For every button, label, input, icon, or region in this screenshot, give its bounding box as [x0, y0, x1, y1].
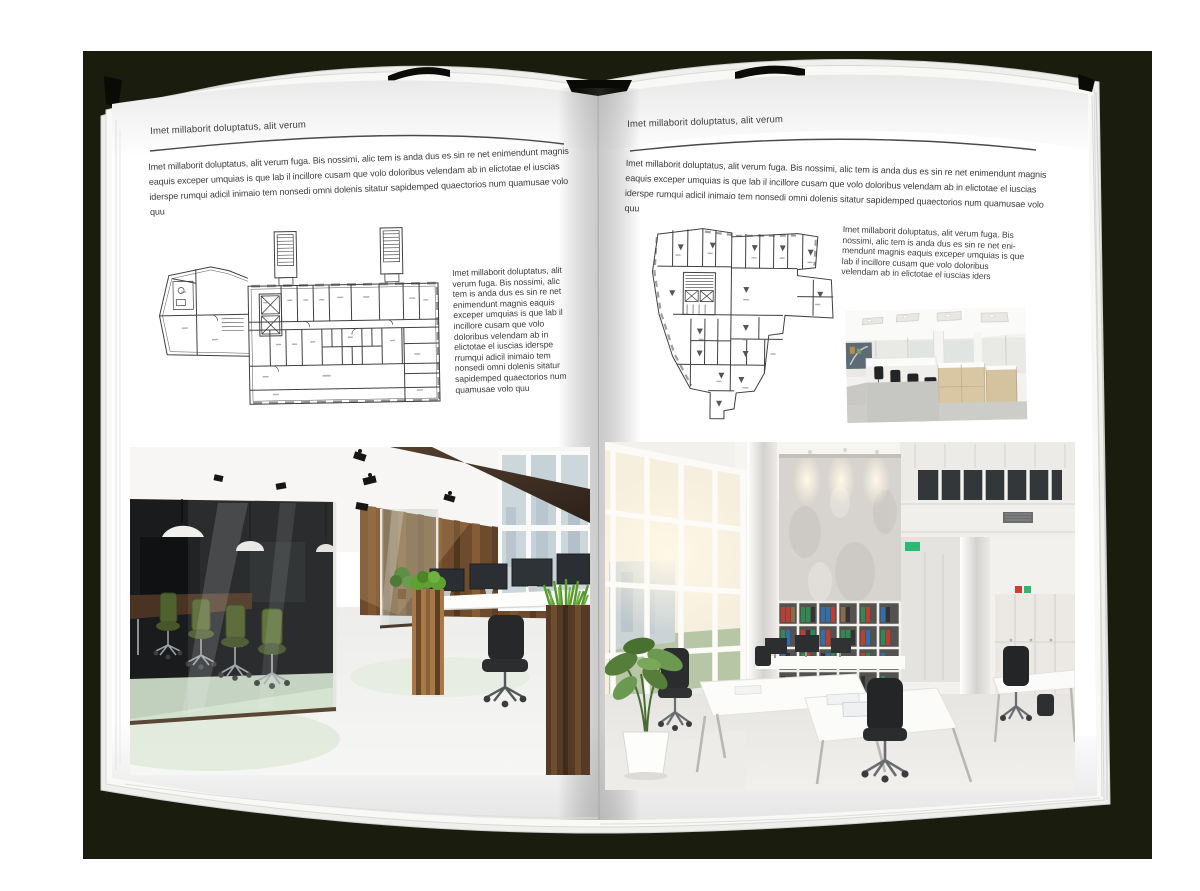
left-floor-plan [150, 223, 445, 416]
left-office-photo [130, 447, 590, 775]
wood-planter-mid [410, 571, 446, 695]
right-small-photo [845, 307, 1027, 423]
office-photo-wood-glass [130, 447, 590, 775]
right-side-paragraph: Imet millaborit doluptatus, alit verum f… [841, 224, 1029, 283]
office-photo-small [845, 307, 1027, 423]
office-photo-bright-loft [605, 442, 1075, 790]
right-floor-plan [646, 220, 838, 422]
left-side-paragraph: Imet millaborit doluptatus, alit verum f… [452, 265, 576, 395]
wood-planter-front [544, 579, 590, 775]
right-intro-paragraph: Imet millaborit doluptatus, alit verum f… [624, 156, 1056, 228]
mezzanine [900, 442, 1075, 537]
right-office-photo [605, 442, 1075, 790]
right-header-rule [626, 126, 1046, 156]
glass-meeting-room [130, 499, 336, 723]
magazine-spread-mockup: Imet millaborit doluptatus, alit verum I… [0, 0, 1200, 891]
